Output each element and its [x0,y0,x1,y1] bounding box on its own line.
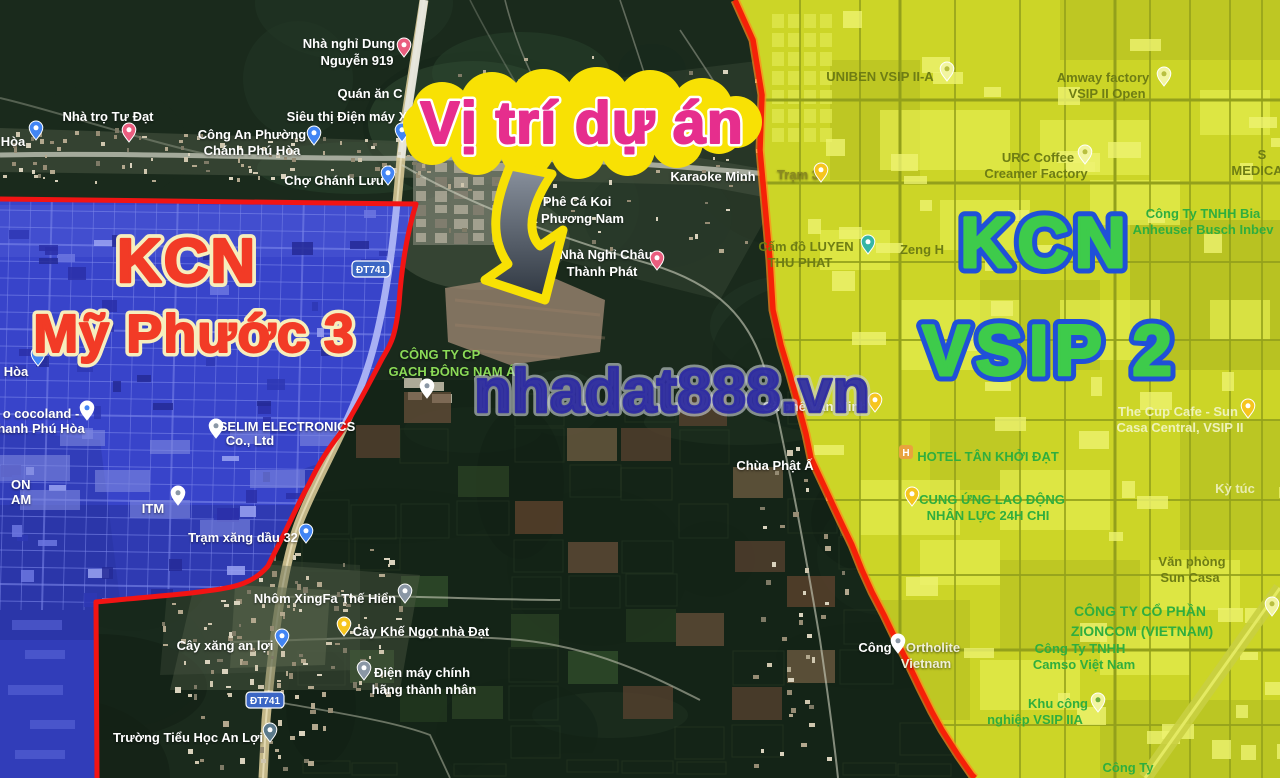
svg-text:hãng thành nhân: hãng thành nhân [372,682,477,697]
svg-text:Trường Tiểu Học An Lợi: Trường Tiểu Học An Lợi [113,730,263,745]
svg-text:Nhà Nghỉ Châu: Nhà Nghỉ Châu [559,247,652,262]
svg-text:SELIM ELECTRONICS: SELIM ELECTRONICS [219,419,356,434]
svg-text:ĐT741: ĐT741 [250,696,280,707]
svg-text:hanh Phú Hòa: hanh Phú Hòa [0,421,85,436]
svg-text:The Cup Cafe - Sun: The Cup Cafe - Sun [1118,404,1238,419]
svg-text:ITM: ITM [142,501,164,516]
svg-text:Cây Khế Ngọt nhà Đạt: Cây Khế Ngọt nhà Đạt [353,624,490,639]
svg-text:Trạm 3: Trạm 3 [777,167,819,182]
svg-text:Điện máy chính: Điện máy chính [374,665,470,680]
svg-text:Hòa: Hòa [4,364,29,379]
svg-text:Khu công: Khu công [1028,696,1088,711]
svg-text:H: H [902,448,909,459]
svg-text:Vietnam: Vietnam [901,656,951,671]
svg-text:nghiệp VSIP IIA: nghiệp VSIP IIA [987,712,1083,727]
svg-text:Thành Phát: Thành Phát [567,264,638,279]
svg-text:CÔNG TY CỔ PHẦN: CÔNG TY CỔ PHẦN [1074,602,1206,619]
svg-text:Công Ty TNHH Bia: Công Ty TNHH Bia [1146,206,1261,221]
svg-text:Công: Công [858,640,891,655]
svg-text:THU PHAT: THU PHAT [768,255,833,270]
svg-text:Nhà nghỉ Dung: Nhà nghỉ Dung [303,36,395,51]
svg-text:Siêu thị Điện máy X: Siêu thị Điện máy X [287,109,408,124]
svg-text:HOTEL TÂN KHỞI ĐẠT: HOTEL TÂN KHỞI ĐẠT [917,449,1059,464]
svg-text:Nguyễn 919: Nguyễn 919 [321,53,394,68]
svg-text:o cocoland -: o cocoland - [3,406,80,421]
svg-text:Nhôm XingFa Thế Hiển: Nhôm XingFa Thế Hiển [254,591,396,606]
svg-text:Quán ăn C: Quán ăn C [337,86,403,101]
svg-text:UNIBEN VSIP II-A: UNIBEN VSIP II-A [826,69,934,84]
svg-text:Casa Central, VSIP II: Casa Central, VSIP II [1117,420,1244,435]
svg-text:Ortholite: Ortholite [906,640,960,655]
svg-text:NHÂN LỰC 24H CHI: NHÂN LỰC 24H CHI [927,508,1050,523]
svg-text:Văn phòng: Văn phòng [1158,554,1225,569]
svg-text:Amway factory: Amway factory [1057,70,1150,85]
svg-text:Cấm đồ LUYEN: Cấm đồ LUYEN [758,239,853,254]
svg-text:Trạm xăng dầu 32: Trạm xăng dầu 32 [188,530,298,545]
svg-text:AM: AM [11,492,31,507]
svg-text:Creamer Factory: Creamer Factory [984,166,1088,181]
svg-text:Chùa Phật Ấ: Chùa Phật Ấ [736,458,814,473]
svg-text:VSIP II Open: VSIP II Open [1068,86,1145,101]
svg-text:Zeng H: Zeng H [900,242,944,257]
svg-text:Nhà trọ Tư Đạt: Nhà trọ Tư Đạt [62,109,154,124]
svg-text:nhadat888.vn: nhadat888.vn [474,357,870,426]
svg-text:VSIP 2: VSIP 2 [922,312,1178,391]
svg-text:CÔNG TY CP: CÔNG TY CP [400,347,481,362]
svg-text:Mỹ Phước 3: Mỹ Phước 3 [33,304,355,364]
svg-text:KCN: KCN [117,227,257,296]
svg-text:Cây xăng an lợi: Cây xăng an lợi [177,638,274,653]
svg-text:Kỳ túc: Kỳ túc [1215,481,1255,496]
svg-text:Co., Ltd: Co., Ltd [226,433,274,448]
svg-text:ON: ON [11,477,31,492]
svg-text:S: S [1258,147,1267,162]
svg-text:Hòa: Hòa [1,134,26,149]
svg-text:Anheuser Busch Inbev: Anheuser Busch Inbev [1133,222,1275,237]
svg-text:Camso Việt Nam: Camso Việt Nam [1033,657,1135,672]
svg-text:KCN: KCN [960,204,1132,283]
svg-text:Công Ty: Công Ty [1102,760,1154,775]
svg-text:Vị trí dự án: Vị trí dự án [420,90,744,156]
svg-text:Công An Phường: Công An Phường [198,127,306,142]
svg-text:a Phương Nam: a Phương Nam [530,211,624,226]
svg-text:MEDICA: MEDICA [1231,163,1280,178]
svg-text:Chợ Chánh Lưu: Chợ Chánh Lưu [284,173,384,188]
svg-text:Công Ty TNHH: Công Ty TNHH [1035,641,1126,656]
svg-text:Chánh Phú Hòa: Chánh Phú Hòa [204,143,302,158]
svg-text:Phê Cá Koi: Phê Cá Koi [543,194,612,209]
svg-text:ZIONCOM (VIETNAM): ZIONCOM (VIETNAM) [1071,623,1213,639]
svg-text:Karaoke Minh: Karaoke Minh [670,169,755,184]
svg-text:URC Coffee: URC Coffee [1002,150,1074,165]
svg-text:ĐT741: ĐT741 [356,265,386,276]
svg-text:CUNG ỨNG LAO ĐỘNG: CUNG ỨNG LAO ĐỘNG [919,492,1065,507]
svg-text:Sun Casa: Sun Casa [1160,570,1220,585]
